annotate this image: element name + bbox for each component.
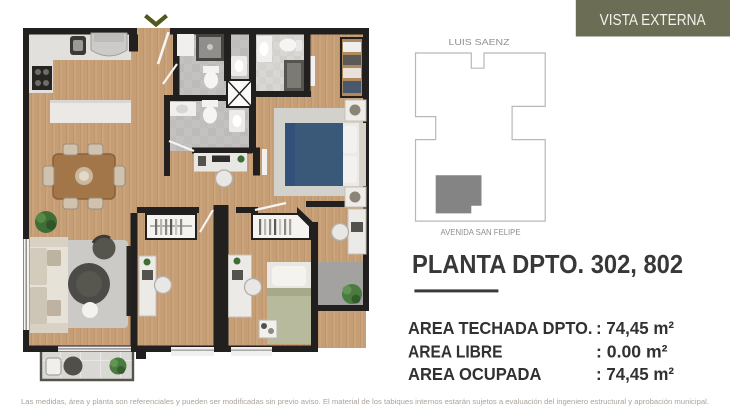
svg-text:: 74,45 m²: : 74,45 m² <box>596 364 674 384</box>
svg-text:AREA LIBRE: AREA LIBRE <box>408 342 503 362</box>
svg-text:AREA TECHADA DPTO.: AREA TECHADA DPTO. <box>408 318 593 338</box>
svg-text:VISTA EXTERNA: VISTA EXTERNA <box>600 12 707 29</box>
svg-text:Las medidas, área y planta son: Las medidas, área y planta son referenci… <box>21 397 709 406</box>
svg-text:LUIS SAENZ: LUIS SAENZ <box>449 38 510 47</box>
svg-text:AVENIDA SAN FELIPE: AVENIDA SAN FELIPE <box>441 228 521 237</box>
svg-text:: 74,45 m²: : 74,45 m² <box>596 318 674 338</box>
svg-text:PLANTA DPTO. 302, 802: PLANTA DPTO. 302, 802 <box>412 249 683 279</box>
svg-text:: 0.00 m²: : 0.00 m² <box>596 342 668 362</box>
svg-text:AREA OCUPADA: AREA OCUPADA <box>408 364 542 384</box>
